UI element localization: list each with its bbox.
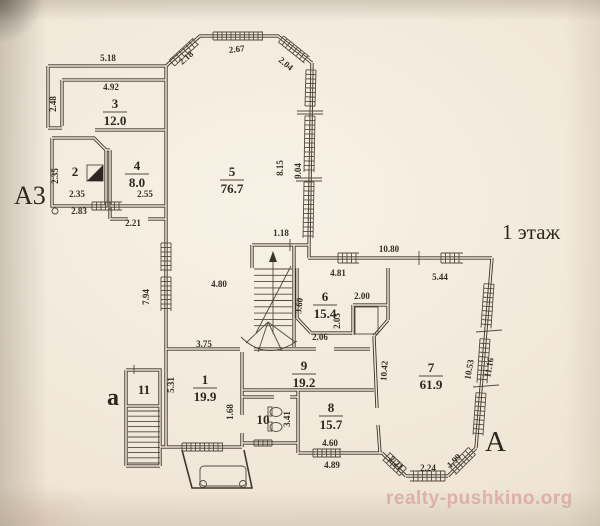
window-rung (483, 302, 493, 303)
window-rung (483, 293, 493, 294)
dimension-label-3.75: 3.75 (196, 339, 212, 349)
window-rail (304, 116, 305, 172)
window-rung (482, 306, 492, 307)
window-rail (313, 182, 314, 238)
dimension-label-5.31: 5.31 (166, 377, 176, 393)
window-rung (484, 284, 494, 285)
dimension-label-5.18: 5.18 (100, 53, 116, 63)
window-rung (480, 343, 490, 344)
window-rung (484, 288, 494, 289)
floor-plan: 5.184.922.482.182.672.048.159.042.352.35… (0, 0, 600, 526)
sill-line (476, 330, 502, 332)
dimension-label-4.80: 4.80 (211, 279, 227, 289)
window-rung (483, 297, 493, 298)
room-number-2: 2 (72, 164, 79, 179)
watermark: realty-pushkino.org (386, 489, 573, 508)
window-rung (476, 397, 486, 398)
dimension-label-4.89: 4.89 (324, 460, 340, 470)
dimension-label-2.21: 2.21 (387, 454, 406, 472)
window-rail (303, 182, 304, 238)
dimension-label-3.60: 3.60 (293, 297, 305, 314)
dimension-label-1.99: 1.99 (445, 451, 464, 469)
axis-label-a-right: А (485, 428, 506, 457)
floor-title: 1 этаж (502, 222, 560, 243)
window-rung (480, 339, 490, 340)
dimension-label-1.68: 1.68 (225, 404, 235, 420)
dimension-label-1.18: 1.18 (273, 228, 289, 238)
sill-line (473, 385, 499, 387)
window-rung (482, 320, 492, 321)
plan-photo: 5.184.922.482.182.672.048.159.042.352.35… (0, 0, 600, 526)
winder-tread (268, 322, 282, 351)
dimension-label-3.41: 3.41 (282, 411, 292, 427)
porch-step (200, 466, 246, 486)
axis-label-a-lower: а (107, 386, 119, 410)
room-number-8: 8 (328, 400, 335, 415)
room-area-9: 19.2 (293, 375, 316, 390)
window-rung (473, 429, 483, 430)
dimension-label-10.42: 10.42 (378, 360, 389, 381)
dimension-label-2.24: 2.24 (420, 463, 436, 473)
room-number-9: 9 (301, 358, 308, 373)
dimension-label-4.60: 4.60 (322, 438, 338, 448)
dimension-label-5.44: 5.44 (432, 272, 448, 282)
room-area-1: 19.9 (194, 389, 217, 404)
winder-tread (268, 322, 295, 342)
window-rail (314, 116, 315, 172)
dimension-label-10.80: 10.80 (379, 244, 400, 254)
dimension-label-10.53: 10.53 (462, 358, 475, 380)
window-rung (473, 433, 483, 434)
dimension-label-2.83: 2.83 (71, 206, 87, 216)
entrance-porch (182, 450, 252, 488)
room-number-11: 11 (138, 382, 150, 397)
room-number-10: 10 (257, 412, 270, 427)
window-rung (475, 402, 485, 403)
room-area-8: 15.7 (320, 417, 343, 432)
window-rung (474, 424, 484, 425)
window-rung (475, 411, 485, 412)
window-rung (479, 348, 489, 349)
window-rail (284, 36, 310, 57)
window-rung (474, 415, 484, 416)
window-rung (479, 352, 489, 353)
window-rung (476, 393, 486, 394)
window-rung (475, 406, 485, 407)
window-rung (474, 420, 484, 421)
dimension-label-4.92: 4.92 (103, 82, 119, 92)
dimension-label-2.00: 2.00 (354, 291, 370, 301)
room-area-7: 61.9 (420, 377, 443, 392)
dimension-label-11.16: 11.16 (482, 356, 495, 378)
window-rung (481, 324, 491, 325)
dimension-label-8.15: 8.15 (275, 160, 285, 176)
window-rung (482, 311, 492, 312)
dimension-label-2.35: 2.35 (50, 168, 60, 184)
room-area-3: 12.0 (104, 113, 127, 128)
dimension-label-2.48: 2.48 (48, 96, 58, 112)
dimension-label-2.04: 2.04 (277, 55, 296, 73)
dimension-label-2.67: 2.67 (228, 43, 245, 55)
dimension-label-2.35: 2.35 (69, 189, 85, 199)
dimension-label-7.94: 7.94 (141, 289, 151, 305)
window-rung (482, 315, 492, 316)
window-rung (477, 379, 487, 380)
dimension-label-2.21: 2.21 (125, 218, 141, 228)
sill-line (256, 266, 291, 333)
room-number-6: 6 (322, 289, 329, 304)
room-number-3: 3 (112, 96, 119, 111)
vent-shaft-marker (87, 165, 103, 181)
axis-label-a3: А3 (14, 183, 46, 209)
room-number-4: 4 (134, 158, 141, 173)
room-area-4: 8.0 (129, 175, 145, 190)
dimension-label-4.81: 4.81 (330, 268, 346, 278)
corner-post (52, 208, 58, 214)
closet-box (355, 307, 378, 334)
room-number-1: 1 (202, 372, 209, 387)
room-area-6: 15.4 (314, 306, 337, 321)
room-number-5: 5 (229, 164, 236, 179)
dimension-label-2.06: 2.06 (312, 332, 328, 342)
stair-up-arrow (269, 251, 277, 262)
dimension-label-2.55: 2.55 (137, 189, 153, 199)
room-number-7: 7 (428, 360, 435, 375)
dimension-label-9.04: 9.04 (293, 163, 303, 179)
room-area-5: 76.7 (221, 181, 244, 196)
